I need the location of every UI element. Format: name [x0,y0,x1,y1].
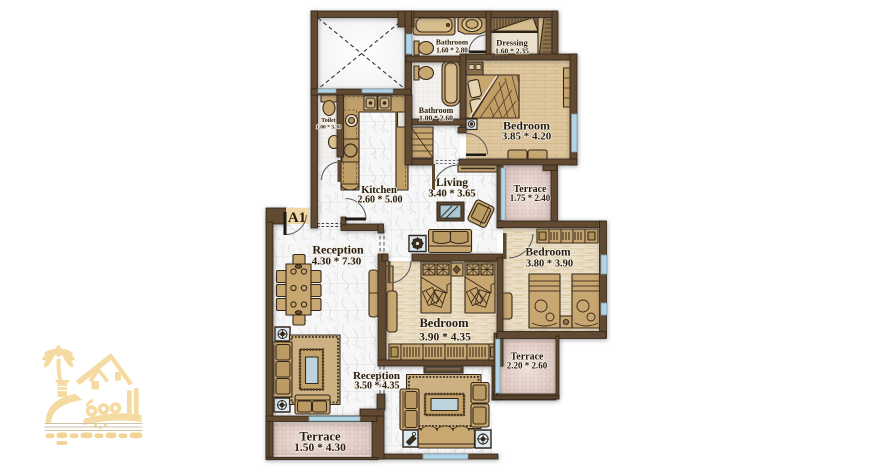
svg-text:3.50 * 4.35: 3.50 * 4.35 [355,381,400,392]
svg-text:1.75 * 2.40: 1.75 * 2.40 [510,193,551,203]
svg-text:Toilet: Toilet [321,118,335,124]
svg-text:2.60 * 5.00: 2.60 * 5.00 [358,195,403,206]
svg-text:3.90 * 4.35: 3.90 * 4.35 [419,332,471,344]
svg-text:Reception: Reception [312,243,364,257]
svg-text:4.30 * 7.30: 4.30 * 7.30 [312,256,362,268]
svg-text:1.60 * 2.35: 1.60 * 2.35 [495,47,529,56]
svg-text:3.40 * 3.65: 3.40 * 3.65 [428,189,475,200]
svg-text:Bedroom: Bedroom [419,316,469,330]
svg-text:3.80 * 3.90: 3.80 * 3.90 [526,259,573,270]
svg-text:3.85 * 4.20: 3.85 * 4.20 [502,131,552,143]
svg-text:Living: Living [436,177,468,189]
svg-text:2.20 * 2.60: 2.20 * 2.60 [507,361,548,371]
svg-text:1.60 * 2.80: 1.60 * 2.80 [436,47,468,55]
svg-text:1.50 * 4.30: 1.50 * 4.30 [294,442,346,454]
svg-text:A1: A1 [288,210,306,226]
svg-text:Bedroom: Bedroom [525,247,571,259]
svg-text:1.00 * 2.60: 1.00 * 2.60 [419,114,453,123]
svg-text:Bathroom: Bathroom [436,38,469,47]
svg-text:1.00 * 3.30: 1.00 * 3.30 [316,125,341,131]
